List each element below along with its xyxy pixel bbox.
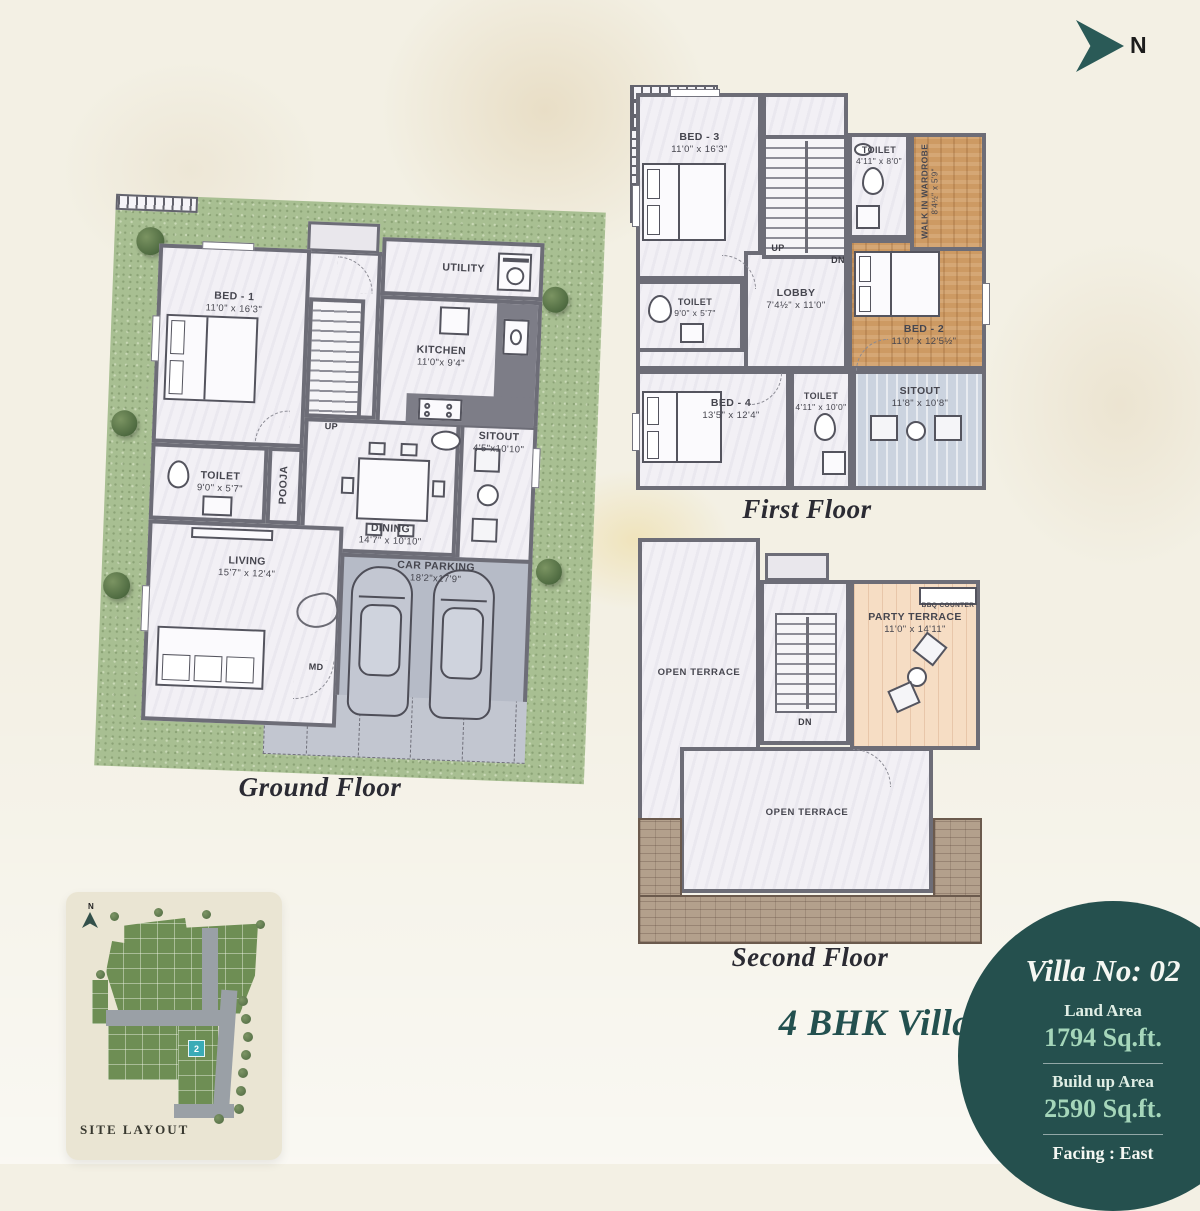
bed-icon (642, 163, 726, 241)
tree-icon (243, 1032, 253, 1042)
room-dim: 9'0" x 5'7" (652, 308, 738, 319)
room-label-sitout-ground: SITOUT 4'5"x10'10" (458, 429, 539, 457)
room-name: TOILET (848, 145, 910, 156)
cushion (162, 654, 191, 681)
bed-icon (854, 251, 940, 317)
build-area-label: Build up Area (988, 1072, 1200, 1092)
site-north-label: N (88, 902, 94, 911)
stairs-up-label: UP (758, 243, 798, 254)
pillow-icon (647, 397, 659, 425)
land-area-label: Land Area (988, 1001, 1200, 1021)
window (632, 185, 640, 227)
tree-icon (241, 1014, 251, 1024)
room-dim: 11'0" x 16'3" (642, 144, 757, 156)
tree-icon (214, 1114, 224, 1124)
first-floor-plan: BED - 3 11'0" x 16'3" TOILET 4'11" x 8'0… (630, 85, 988, 495)
shower-tray-icon (680, 323, 704, 343)
room-label-pooja: POOJA (276, 450, 292, 520)
room-name: BED - 2 (868, 323, 980, 336)
tree-icon (535, 558, 562, 585)
tree-icon (111, 410, 138, 437)
pillow-icon (170, 320, 185, 355)
room-name: BED - 3 (642, 131, 757, 144)
blanket-line (890, 253, 892, 315)
room-name: OPEN TERRACE (641, 667, 757, 679)
stairs-dn-label: DN (818, 255, 858, 266)
room-label-toilet3: TOILET 4'11" x 10'0" (790, 391, 852, 413)
main-door-label: MD (296, 661, 336, 674)
tree-icon (238, 996, 248, 1006)
villa-type-label: 4 BHK Villa (760, 1002, 990, 1045)
ground-floor-caption: Ground Floor (195, 772, 445, 803)
room-label-dining: DINING 14'7" x 10'10" (335, 520, 446, 549)
room-label-lobby: LOBBY 7'4½" x 11'0" (750, 287, 842, 312)
blanket-line (678, 165, 680, 239)
stairs-up-label: UP (303, 420, 359, 433)
second-floor-plan: BBQ COUNTER OPEN TERRACE PARTY TERRACE 1… (635, 535, 985, 947)
tree-icon (238, 1068, 248, 1078)
burner-icon (446, 412, 452, 418)
room-name: SITOUT (870, 385, 970, 398)
facing-label: Facing : East (988, 1143, 1200, 1164)
room-name: WALK IN WARDROBE (920, 143, 931, 239)
car-windshield (441, 599, 487, 603)
burner-icon (446, 404, 452, 410)
site-road (202, 928, 218, 1018)
room-label-bed2: BED - 2 11'0" x 12'5½" (868, 323, 980, 348)
room-name: TOILET (652, 297, 738, 308)
sink-icon (502, 319, 529, 356)
room-dim: 7'4½" x 11'0" (750, 300, 842, 312)
room-label-wardrobe: WALK IN WARDROBE 8'4½" x 5'9" (920, 143, 941, 239)
pillow-icon (859, 256, 871, 282)
car-windshield (359, 595, 405, 599)
bbq-counter: BBQ COUNTER (919, 587, 977, 605)
stove-icon (418, 398, 463, 422)
pillow-icon (647, 169, 660, 199)
north-indicator: N (1076, 18, 1186, 78)
burner-icon (424, 411, 430, 417)
chair-icon (471, 518, 498, 543)
roof-tiles (638, 895, 982, 944)
terrace-bottom (680, 747, 933, 893)
floorplan-sheet: { "page": { "villa_type": "4 BHK Villa" … (0, 0, 1200, 1164)
bbq-text: BBQ COUNTER (922, 602, 975, 609)
window (632, 413, 640, 451)
pillow-icon (859, 286, 871, 312)
room-label-toilet-ground: TOILET 9'0" x 5'7" (177, 468, 264, 496)
window (982, 283, 990, 325)
toilet-wc-icon (862, 167, 884, 195)
cushion (194, 655, 223, 682)
staircase-first (762, 135, 848, 259)
site-plots (108, 1026, 178, 1080)
toilet-wc-icon (814, 413, 836, 441)
room-label-bed1: BED - 1 11'0" x 16'3" (164, 288, 305, 318)
burner-icon (424, 403, 430, 409)
room-dim: 11'0" x 14'11" (853, 624, 977, 636)
terrace-left-label: OPEN TERRACE (641, 667, 757, 679)
room-label-bed4: BED - 4 13'5" x 12'4" (672, 397, 790, 422)
site-plot-number: 2 (194, 1044, 199, 1054)
tree-icon (234, 1104, 244, 1114)
car-roof (358, 603, 403, 677)
villa-number: Villa No: 02 (988, 953, 1200, 989)
ground-floor-plan: BED - 1 11'0" x 16'3" UTILITY KITCHEN 11… (94, 194, 606, 784)
north-label: N (1130, 32, 1147, 59)
room-name: POOJA (276, 450, 292, 520)
room-dim: 4'11" x 10'0" (790, 402, 852, 413)
car-roof (440, 607, 485, 681)
tree-icon (241, 1050, 251, 1060)
tree-icon (256, 920, 265, 929)
room-label-kitchen: KITCHEN 11'0"x 9'4" (386, 342, 497, 371)
bg-blob (980, 240, 1200, 570)
tree-icon (202, 910, 211, 919)
room-dim: 8'4½" x 5'9" (930, 143, 940, 239)
bed-icon (163, 314, 258, 403)
room-dim: 13'5" x 12'4" (672, 410, 790, 422)
tree-icon (110, 912, 119, 921)
tree-icon (542, 286, 569, 313)
bbq-counter-label: BBQ COUNTER (921, 593, 975, 613)
room-name: PARTY TERRACE (853, 611, 977, 624)
room-porch (307, 221, 380, 254)
tree-icon (96, 970, 105, 979)
tree-icon (236, 1086, 246, 1096)
site-road (106, 1010, 222, 1026)
sink-bowl (510, 329, 523, 345)
room-name: LOBBY (750, 287, 842, 300)
room-label-toilet1: TOILET 4'11" x 8'0" (848, 145, 910, 167)
pillow-icon (169, 360, 184, 395)
staircase-second (775, 613, 837, 713)
room-name: BED - 4 (672, 397, 790, 410)
chair-icon (934, 415, 962, 441)
pillow-icon (647, 431, 659, 459)
room-dim: 11'0" x 12'5½" (868, 336, 980, 348)
north-arrow-icon (1076, 20, 1124, 72)
dining-table-icon (356, 457, 430, 522)
site-layout-card: N 2 SITE LAYOUT (66, 892, 282, 1160)
divider (1043, 1063, 1163, 1064)
wm-panel (503, 258, 529, 263)
room-label-living: LIVING 15'7" x 12'4" (176, 552, 317, 582)
stairs-dn-label: DN (785, 717, 825, 728)
pillow-icon (647, 205, 660, 235)
chair-icon (432, 480, 446, 497)
window (670, 89, 720, 97)
site-plot-marker: 2 (188, 1040, 205, 1057)
site-layout-caption: SITE LAYOUT (80, 1122, 189, 1138)
chair-icon (400, 443, 417, 457)
shower-tray-icon (202, 495, 233, 516)
party-terrace-label: PARTY TERRACE 11'0" x 14'11" (853, 611, 977, 636)
first-floor-caption: First Floor (732, 494, 882, 525)
shower-tray-icon (856, 205, 880, 229)
room-corridor-first (636, 348, 748, 370)
staircase-ground (305, 297, 366, 419)
parking-stall-line (514, 700, 517, 762)
room-label-sitout-first: SITOUT 11'8" x 10'8" (870, 385, 970, 410)
room-name: TOILET (790, 391, 852, 402)
site-road (174, 1104, 234, 1118)
car-icon (346, 565, 414, 717)
room-label-toilet2: TOILET 9'0" x 5'7" (652, 297, 738, 319)
fridge-icon (439, 306, 470, 335)
room-name: OPEN TERRACE (747, 807, 867, 819)
sofa-icon (155, 626, 265, 690)
divider (1043, 1134, 1163, 1135)
room-label-bed3: BED - 3 11'0" x 16'3" (642, 131, 757, 156)
wardrobe-icon (116, 194, 199, 213)
site-north-arrow-icon (82, 912, 98, 928)
car-icon (428, 568, 496, 720)
tree-icon (154, 908, 163, 917)
room-label-parking: CAR PARKING 18'2"x17'9" (365, 558, 506, 588)
terrace-bottom-label: OPEN TERRACE (747, 807, 867, 819)
chair-icon (870, 415, 898, 441)
tree-icon (103, 572, 131, 600)
site-plots (178, 1026, 218, 1106)
shower-tray-icon (822, 451, 846, 475)
chair-icon (341, 477, 355, 494)
chair-icon (368, 442, 385, 456)
second-floor-caption: Second Floor (720, 942, 900, 973)
stair-rail (805, 141, 808, 253)
stair-rail (806, 617, 809, 709)
entry-canopy (765, 553, 829, 581)
room-dim: 11'8" x 10'8" (870, 398, 970, 410)
build-area-value: 2590 Sq.ft. (988, 1094, 1200, 1124)
land-area-value: 1794 Sq.ft. (988, 1023, 1200, 1053)
blanket-line (203, 317, 208, 399)
cushion (225, 656, 254, 683)
room-dim: 4'11" x 8'0" (848, 156, 910, 167)
parking-stall-line (410, 696, 413, 758)
round-table-icon (906, 421, 926, 441)
villa-info-content: Villa No: 02 Land Area 1794 Sq.ft. Build… (988, 953, 1200, 1164)
